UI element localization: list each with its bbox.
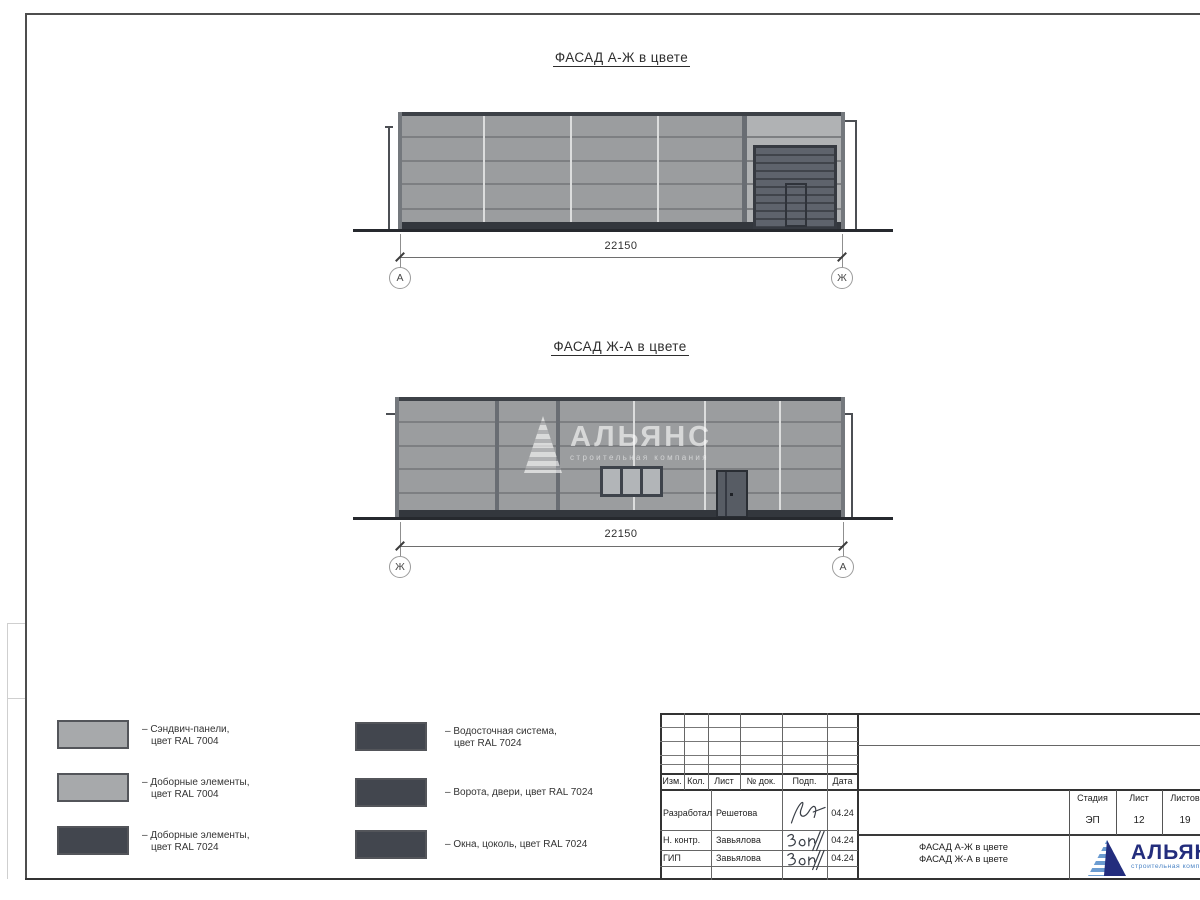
tb-sheet-value: 12 <box>1116 812 1162 830</box>
tb-name-3: Завьялова <box>716 852 761 865</box>
watermark-subtitle: строительная компания <box>570 453 712 462</box>
tb-date-1: 04.24 <box>827 807 858 820</box>
tb-name-2: Завьялова <box>716 834 761 847</box>
legend-swatch-4 <box>355 722 427 751</box>
frame-top <box>25 13 1200 15</box>
axis-mark-zh-bottom: Ж <box>389 556 411 578</box>
legend-swatch-6 <box>355 830 427 859</box>
alliance-logo-icon <box>1088 840 1126 876</box>
legend-label-4: – Водосточная система,цвет RAL 7024 <box>445 726 557 749</box>
tb-sheet-label: Лист <box>1116 792 1162 805</box>
legend-label-6: – Окна, цоколь, цвет RAL 7024 <box>445 839 587 851</box>
frame-left <box>25 13 27 880</box>
ground-line-bottom <box>353 517 893 520</box>
margin-divider-2 <box>7 698 25 699</box>
drawing-sheet: ФАСАД А-Ж в цвете 22150 А Ж ФАСАД Ж-А в … <box>0 0 1200 900</box>
axis-mark-zh-top: Ж <box>831 267 853 289</box>
watermark-name: АЛЬЯНС <box>570 422 712 452</box>
facade-top-building <box>398 112 845 230</box>
tb-role-1: Разработал <box>663 807 712 820</box>
signature-1 <box>786 794 826 830</box>
tb-name-1: Решетова <box>716 807 757 820</box>
legend-label-3: – Доборные элементы,цвет RAL 7024 <box>142 830 249 853</box>
downpipe-left <box>388 126 390 230</box>
legend-swatch-1 <box>57 720 129 749</box>
legend-label-2: – Доборные элементы,цвет RAL 7004 <box>142 777 249 800</box>
parapet-trim <box>395 397 845 401</box>
legend-label-1: – Сэндвич-панели,цвет RAL 7004 <box>142 724 229 747</box>
tb-header-izm: Изм. <box>660 775 684 788</box>
tb-header-data: Дата <box>827 775 858 788</box>
gate <box>753 145 837 230</box>
tb-role-2: Н. контр. <box>663 834 700 847</box>
watermark: АЛЬЯНС строительная компания <box>524 416 712 473</box>
facade-top-title: ФАСАД А-Ж в цвете <box>398 50 845 67</box>
tb-header-ndok: № док. <box>740 775 782 788</box>
tb-stage-value: ЭП <box>1069 812 1116 830</box>
legend-swatch-5 <box>355 778 427 807</box>
margin-divider-1 <box>7 623 25 624</box>
tb-header-podp: Подп. <box>782 775 827 788</box>
logo-name: АЛЬЯНС <box>1131 841 1200 865</box>
tb-role-3: ГИП <box>663 852 681 865</box>
tb-sheet-name: ФАСАД А-Ж в цвете ФАСАД Ж-А в цвете <box>858 842 1069 865</box>
ground-line-top <box>353 229 893 232</box>
facade-top-dimension: 22150 <box>560 240 682 252</box>
axis-mark-a-top: А <box>389 267 411 289</box>
facade-bottom-title: ФАСАД Ж-А в цвете <box>395 339 845 356</box>
logo-subtitle: строительная компания <box>1131 863 1200 870</box>
tb-header-list: Лист <box>708 775 740 788</box>
tb-header-kol: Кол. <box>684 775 708 788</box>
downpipe-left-bracket-2 <box>386 413 395 415</box>
tb-sheets-label: Листов <box>1162 792 1200 805</box>
downpipe-right-2 <box>851 413 853 518</box>
alliance-triangle-watermark-icon <box>524 416 562 473</box>
signature-3 <box>784 849 826 871</box>
parapet-trim <box>398 112 845 116</box>
downpipe-right <box>855 120 857 230</box>
tb-sheets-value: 19 <box>1162 812 1200 830</box>
frame-bottom <box>25 878 1200 880</box>
tb-date-2: 04.24 <box>827 834 858 847</box>
tb-date-3: 04.24 <box>827 852 858 865</box>
wicket-door <box>785 183 807 227</box>
entrance-door <box>716 470 748 518</box>
legend-swatch-3 <box>57 826 129 855</box>
door-handle <box>730 493 733 496</box>
legend-swatch-2 <box>57 773 129 802</box>
tb-stage-label: Стадия <box>1069 792 1116 805</box>
legend-label-5: – Ворота, двери, цвет RAL 7024 <box>445 787 593 799</box>
axis-mark-a-bottom: А <box>832 556 854 578</box>
margin-column-line <box>7 623 8 879</box>
facade-bottom-dimension: 22150 <box>560 528 682 540</box>
